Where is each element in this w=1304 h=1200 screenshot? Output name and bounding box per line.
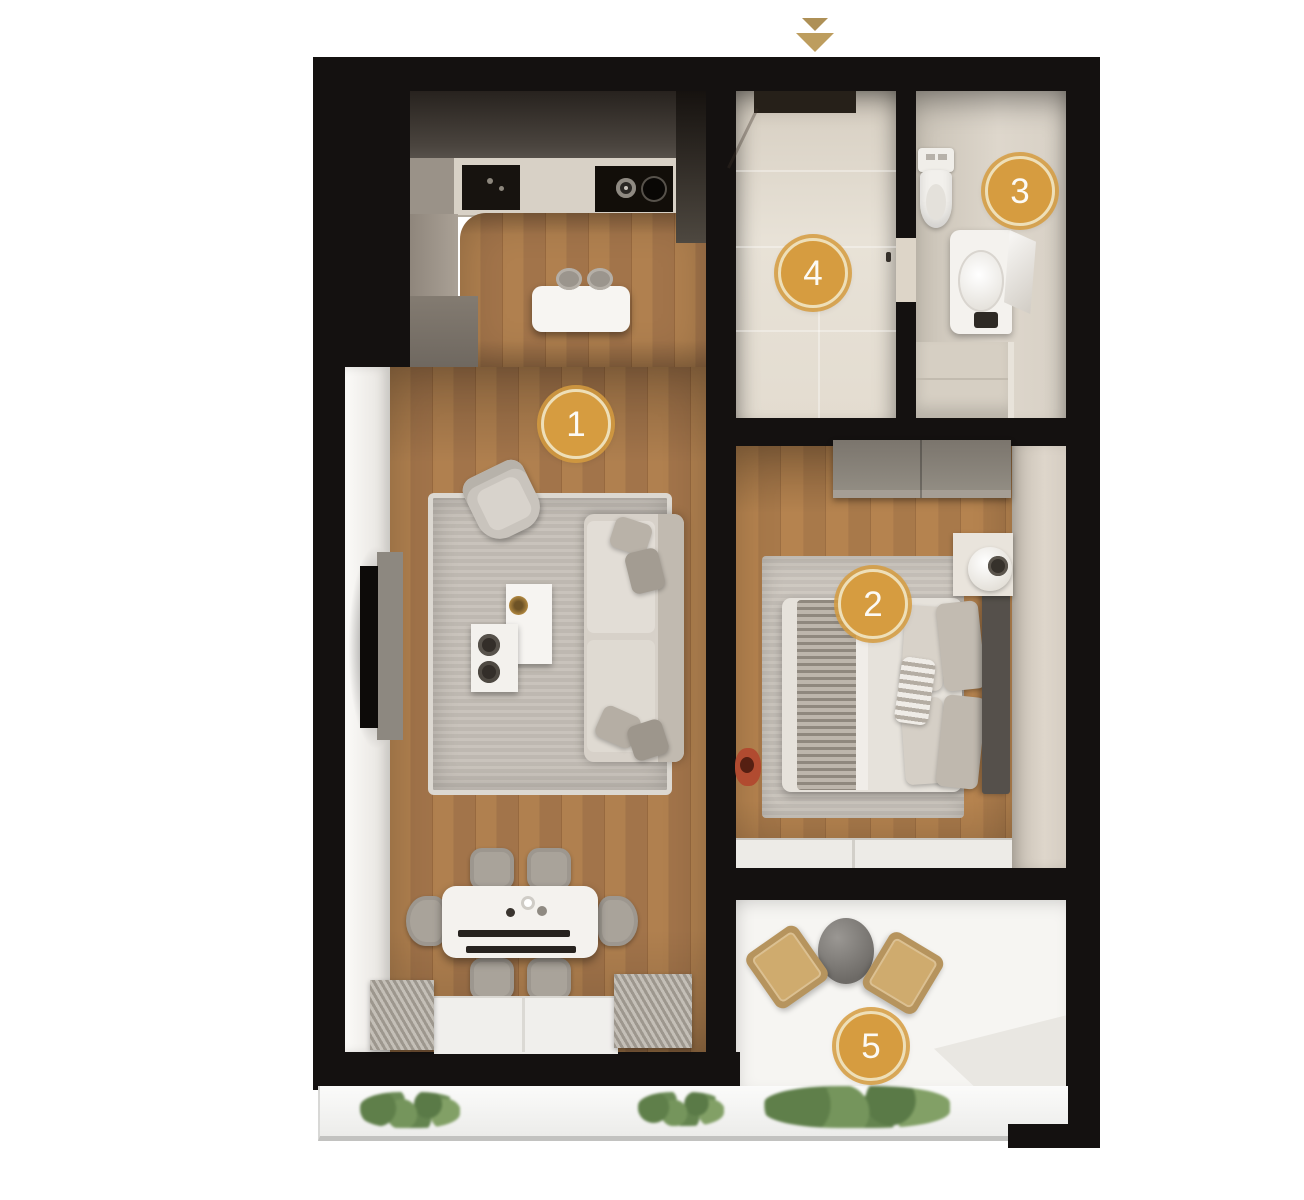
hallway-tile-line xyxy=(736,170,896,172)
bedroom-window-frame xyxy=(852,840,855,868)
faucet-icon xyxy=(487,178,493,184)
floor-plan-canvas: 1 2 3 4 5 xyxy=(0,0,1304,1200)
living-room-window-sill xyxy=(434,996,618,1054)
dining-chair xyxy=(598,896,638,946)
bathroom-cabinet xyxy=(916,342,1014,418)
wall-bottom-right-foot xyxy=(1008,1124,1100,1148)
decor-bowl xyxy=(478,634,500,656)
table-runner xyxy=(466,946,576,953)
flush-button xyxy=(926,154,935,160)
wall-center-divider xyxy=(706,91,736,1090)
wall-left-upper-block xyxy=(313,57,410,367)
room-marker-1: 1 xyxy=(541,389,611,459)
room-marker-3: 3 xyxy=(985,156,1055,226)
room-marker-2: 2 xyxy=(838,569,908,639)
dining-chair xyxy=(527,848,571,890)
table-decor xyxy=(506,908,515,917)
cabinet-edge xyxy=(1008,342,1014,418)
kitchen-upper-cabinet-zone xyxy=(410,91,706,161)
wall-right xyxy=(1066,57,1100,1148)
chevron-down-large-icon xyxy=(796,33,834,52)
tv-wall-panel xyxy=(377,552,403,740)
tv-screen xyxy=(360,566,378,728)
kitchen-counter-end xyxy=(410,158,454,215)
room-marker-label: 1 xyxy=(566,407,585,442)
room-marker-label: 5 xyxy=(861,1029,880,1064)
bathroom-door-leaf xyxy=(896,238,916,302)
table-runner xyxy=(458,930,570,937)
toilet-cistern xyxy=(918,148,954,172)
wall-top xyxy=(313,57,1100,91)
plant xyxy=(764,1086,950,1128)
armchair-cushion xyxy=(474,474,535,534)
cabinet-drawer-line xyxy=(916,378,1014,380)
hallway-tile-line xyxy=(736,330,896,332)
entrance-double-chevron-down-icon xyxy=(795,18,835,54)
entry-door xyxy=(754,91,856,113)
decor-bowl xyxy=(478,661,500,683)
faucet-icon xyxy=(499,186,504,191)
kitchen-island-table xyxy=(532,286,630,332)
room-marker-4: 4 xyxy=(778,238,848,308)
room-marker-label: 3 xyxy=(1010,174,1029,209)
wall-bottom-left xyxy=(313,1052,740,1090)
headboard xyxy=(982,584,1010,794)
dining-chair xyxy=(470,848,514,890)
red-decor-item-center xyxy=(740,757,754,773)
table-decor xyxy=(521,896,535,910)
wardrobe-front-edge xyxy=(833,490,1011,498)
bedroom-right-wall-face xyxy=(1012,446,1066,868)
washbasin xyxy=(958,250,1004,312)
window-frame xyxy=(522,998,525,1052)
bed-pillow xyxy=(936,600,987,692)
plant xyxy=(638,1092,724,1126)
room-marker-label: 2 xyxy=(863,587,882,622)
plant xyxy=(360,1092,460,1128)
chevron-down-small-icon xyxy=(802,18,828,31)
wall-left xyxy=(313,367,345,1090)
wall-hook xyxy=(886,252,891,262)
curtain xyxy=(614,974,692,1048)
dining-chair xyxy=(470,958,514,1000)
bedroom-window-sill xyxy=(736,838,1012,870)
dining-chair xyxy=(406,896,446,946)
wardrobe-seam xyxy=(920,440,922,498)
bathroom-accessory xyxy=(974,312,998,328)
kitchen-sink xyxy=(462,165,520,210)
mirror-cabinet-door xyxy=(1004,230,1036,314)
room-marker-label: 4 xyxy=(803,256,822,291)
toilet-seat xyxy=(926,184,946,220)
wall-bedroom-balcony xyxy=(706,868,1100,900)
curtain xyxy=(370,980,434,1050)
dining-chair xyxy=(527,958,571,1000)
room-marker-5: 5 xyxy=(836,1011,906,1081)
kitchen-side-panel xyxy=(676,91,706,243)
bar-stool xyxy=(556,268,582,290)
coffee-table xyxy=(471,624,518,692)
cooking-pot xyxy=(641,176,667,202)
decor-tray xyxy=(509,596,528,615)
table-decor xyxy=(537,906,547,916)
cooking-pot xyxy=(616,178,636,198)
nightstand-decor xyxy=(988,556,1008,576)
flush-button xyxy=(938,154,947,160)
bar-stool xyxy=(587,268,613,290)
